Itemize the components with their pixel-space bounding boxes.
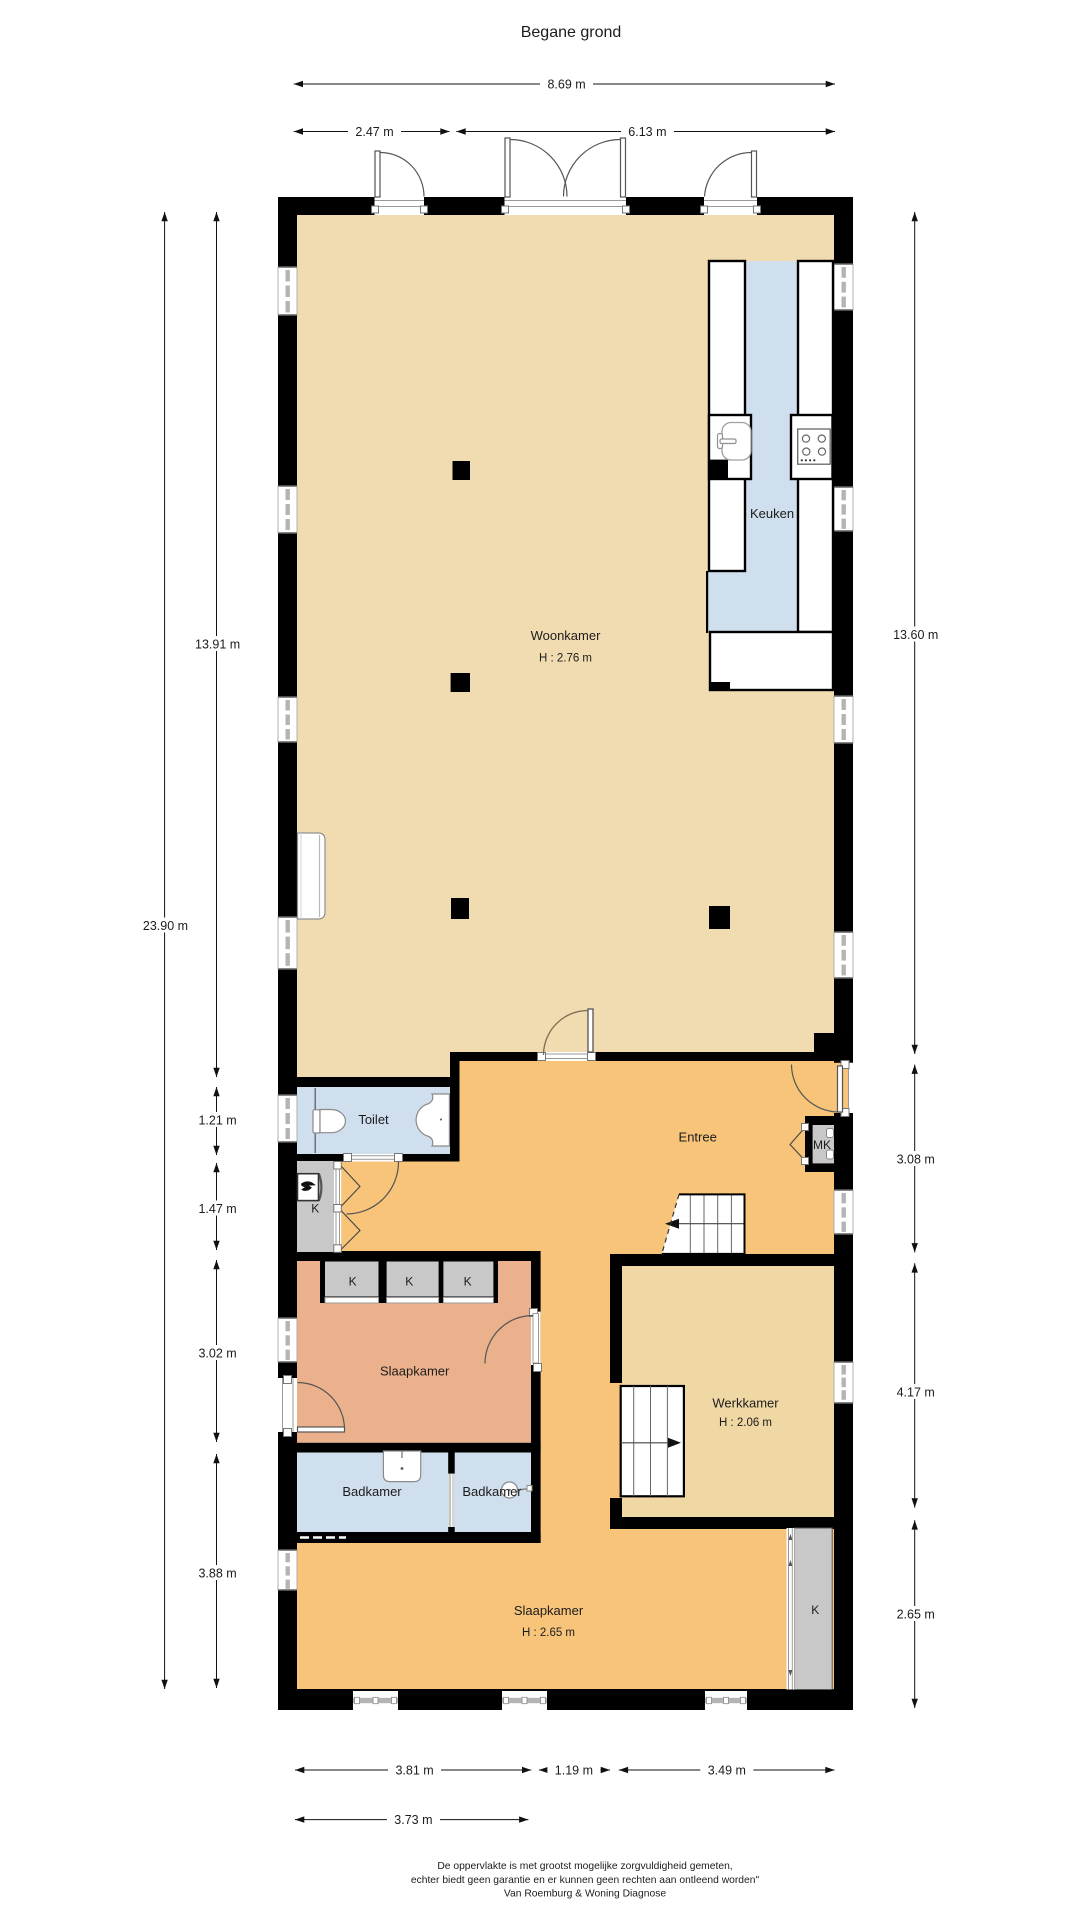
svg-text:K: K [811,1603,819,1617]
svg-text:Keuken: Keuken [750,506,794,521]
svg-text:Woonkamer: Woonkamer [531,628,602,643]
svg-text:1.47 m: 1.47 m [198,1202,236,1216]
svg-text:3.73 m: 3.73 m [394,1813,432,1827]
svg-text:Toilet: Toilet [358,1112,389,1127]
svg-text:Slaapkamer: Slaapkamer [514,1603,584,1618]
svg-text:2.65 m: 2.65 m [897,1608,935,1622]
svg-text:13.91 m: 13.91 m [195,638,240,652]
svg-text:13.60 m: 13.60 m [893,628,938,642]
svg-text:3.49 m: 3.49 m [708,1764,746,1778]
svg-text:3.08 m: 3.08 m [897,1153,935,1167]
svg-text:Van Roemburg & Woning Diagnose: Van Roemburg & Woning Diagnose [504,1889,666,1900]
svg-text:Badkamer: Badkamer [342,1484,402,1499]
svg-text:3.81 m: 3.81 m [395,1764,433,1778]
svg-text:H : 2.06 m: H : 2.06 m [719,1417,772,1429]
svg-text:23.90 m: 23.90 m [143,919,188,933]
svg-text:K: K [349,1274,357,1288]
svg-text:H : 2.65 m: H : 2.65 m [522,1627,575,1639]
svg-text:Badkamer: Badkamer [462,1484,522,1499]
svg-text:3.02 m: 3.02 m [198,1347,236,1361]
svg-text:6.13 m: 6.13 m [628,125,666,139]
svg-text:Entree: Entree [679,1130,717,1145]
svg-text:De oppervlakte is met grootst: De oppervlakte is met grootst mogelijke … [437,1861,732,1872]
svg-text:echter biedt geen garantie en: echter biedt geen garantie en er kunnen … [411,1875,760,1886]
svg-text:4.17 m: 4.17 m [897,1386,935,1400]
svg-text:K: K [464,1274,472,1288]
svg-text:8.69 m: 8.69 m [547,78,585,92]
svg-text:K: K [405,1274,413,1288]
svg-text:Begane grond: Begane grond [521,24,622,41]
svg-text:2.47 m: 2.47 m [355,125,393,139]
svg-text:1.19 m: 1.19 m [555,1764,593,1778]
svg-text:1.21 m: 1.21 m [198,1114,236,1128]
svg-text:3.88 m: 3.88 m [198,1567,236,1581]
svg-text:Slaapkamer: Slaapkamer [380,1364,450,1379]
svg-text:Werkkamer: Werkkamer [712,1396,779,1411]
svg-text:H : 2.76 m: H : 2.76 m [539,653,592,665]
svg-text:MK: MK [813,1138,831,1152]
svg-text:K: K [311,1202,319,1216]
